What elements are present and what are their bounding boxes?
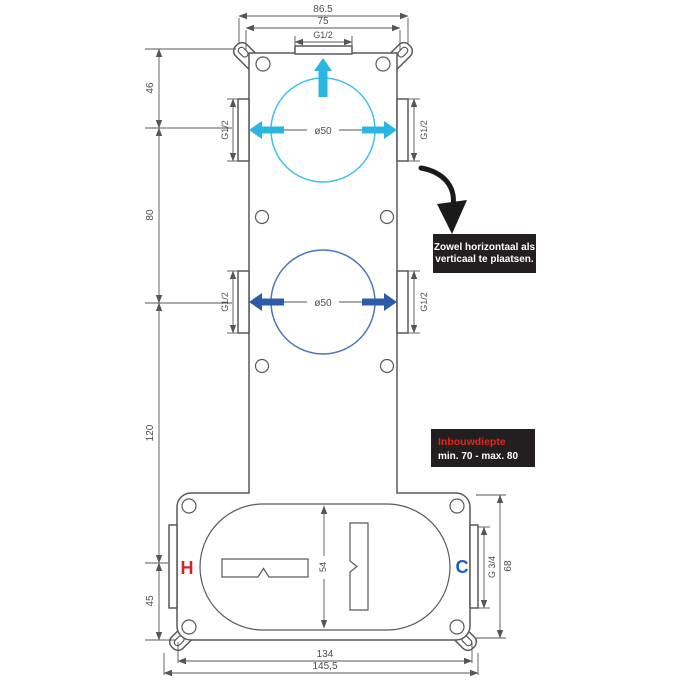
dim-c2-right-thread: G1/2 [419, 292, 429, 312]
lower-circle-diameter-label: ø50 [314, 298, 332, 309]
dim-top-inner: 75 [317, 16, 329, 27]
placement-note-line1: Zowel horizontaal als [434, 242, 536, 253]
placement-note-line2: verticaal te plaatsen. [435, 254, 534, 265]
base-right-dimensions: G 3/4 68 [476, 495, 514, 638]
top-dimensions: 86.5 75 G1/2 [239, 4, 408, 50]
placement-note: Zowel horizontaal als verticaal te plaat… [421, 168, 536, 273]
dim-left-seg4: 45 [145, 595, 156, 607]
depth-note-title: Inbouwdiepte [438, 436, 506, 448]
dim-c1-left-thread: G1/2 [220, 120, 230, 140]
dim-cold-thread: G 3/4 [487, 556, 497, 578]
dim-top-outer: 86.5 [313, 4, 333, 15]
dim-left-seg2: 80 [145, 209, 156, 221]
curved-arrow-icon [421, 168, 453, 206]
dim-c2-left-thread: G1/2 [220, 292, 230, 312]
dim-left-seg1: 46 [145, 82, 156, 94]
upper-circle-diameter-label: ø50 [314, 126, 332, 137]
dim-bottom-inner: 134 [317, 649, 334, 660]
bottom-dimensions: 134 145,5 [164, 642, 478, 675]
depth-note: Inbouwdiepte min. 70 - max. 80 [431, 429, 535, 467]
technical-drawing-page: ø50 ø50 54 H C 86.5 75 [0, 0, 685, 685]
dim-left-seg3: 120 [145, 424, 156, 441]
depth-note-value: min. 70 - max. 80 [438, 451, 518, 462]
dim-top-port-thread: G1/2 [313, 30, 333, 40]
dim-c1-right-thread: G1/2 [419, 120, 429, 140]
top-outlet-port [295, 46, 352, 54]
installation-box-drawing: ø50 ø50 54 H C 86.5 75 [0, 0, 685, 685]
cold-water-label: C [456, 557, 469, 577]
dim-bottom-outer: 145,5 [312, 661, 337, 672]
dim-base-height: 68 [503, 560, 514, 572]
oval-height-label: 54 [318, 562, 328, 572]
curved-arrow-head [437, 200, 467, 234]
valve-body-outline [177, 53, 470, 640]
hot-water-label: H [181, 558, 194, 578]
